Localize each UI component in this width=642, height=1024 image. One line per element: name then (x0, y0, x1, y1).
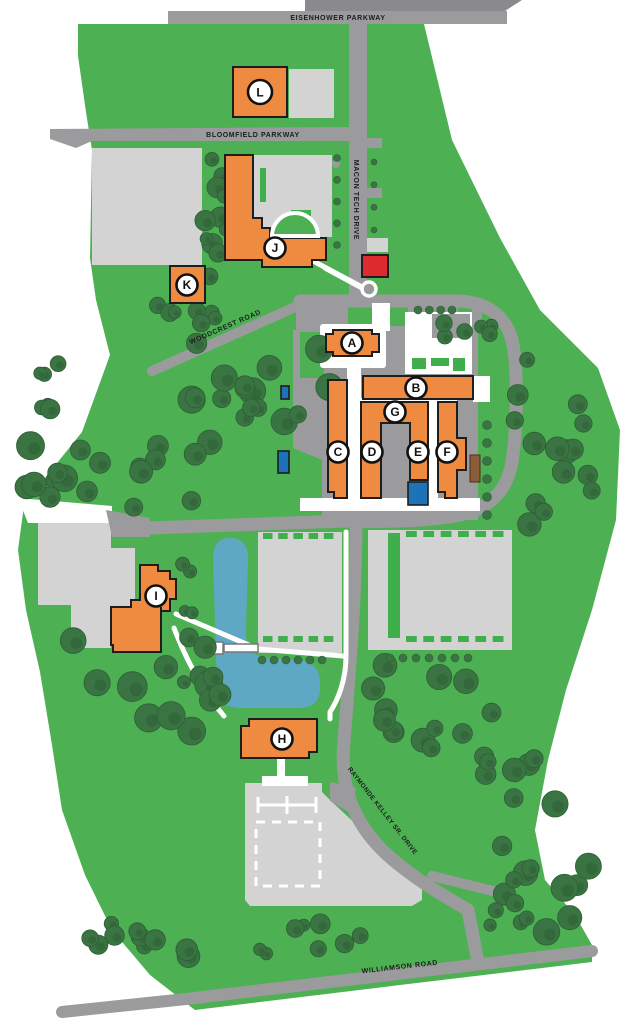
svg-text:K: K (183, 278, 192, 292)
campus-map: A B C D E F G H I J K L EISENHOWER PARKW… (0, 0, 642, 1024)
marker-G[interactable]: G (385, 402, 406, 423)
lot-west-drive (111, 548, 135, 607)
campus-map-page: A B C D E F G H I J K L EISENHOWER PARKW… (0, 0, 642, 1024)
building-brown[interactable] (470, 455, 480, 482)
svg-text:E: E (414, 445, 422, 459)
svg-text:I: I (154, 589, 157, 603)
marker-H[interactable]: H (272, 729, 293, 750)
road-top-bar (305, 0, 522, 11)
marker-F[interactable]: F (437, 442, 458, 463)
walk-south-band (300, 498, 480, 511)
dock (224, 644, 258, 652)
label-bloomfield: BLOOMFIELD PARKWAY (206, 132, 300, 139)
marker-blue-1 (281, 386, 289, 399)
marker-J[interactable]: J (265, 238, 286, 259)
marker-blue-2 (278, 451, 289, 473)
walk-cd (347, 360, 361, 502)
marker-K[interactable]: K (177, 275, 198, 296)
label-macon: MACON TECH DRIVE (352, 160, 359, 240)
marker-L[interactable]: L (248, 80, 272, 104)
svg-text:G: G (390, 405, 399, 419)
lot-northwest (92, 148, 202, 265)
svg-text:L: L (256, 86, 263, 100)
svg-text:H: H (278, 732, 287, 746)
building-red[interactable] (362, 255, 388, 277)
macon-stub-2 (367, 188, 382, 198)
lot-center (258, 532, 342, 653)
marker-A[interactable]: A (342, 333, 363, 354)
svg-text:C: C (334, 445, 343, 459)
building-C[interactable] (328, 380, 347, 498)
marker-I[interactable]: I (146, 586, 167, 607)
marker-B[interactable]: B (406, 378, 427, 399)
lot-L-pad (289, 69, 334, 118)
macon-stub-1 (367, 138, 382, 148)
building-blue[interactable] (408, 482, 428, 505)
roundabout (362, 282, 376, 296)
marker-E[interactable]: E (408, 442, 429, 463)
svg-text:A: A (348, 336, 357, 350)
svg-text:B: B (412, 381, 421, 395)
svg-text:J: J (272, 241, 279, 255)
marker-C[interactable]: C (328, 442, 349, 463)
marker-D[interactable]: D (362, 442, 383, 463)
svg-text:D: D (368, 445, 377, 459)
svg-text:F: F (443, 445, 450, 459)
label-eisenhower: EISENHOWER PARKWAY (290, 15, 385, 22)
